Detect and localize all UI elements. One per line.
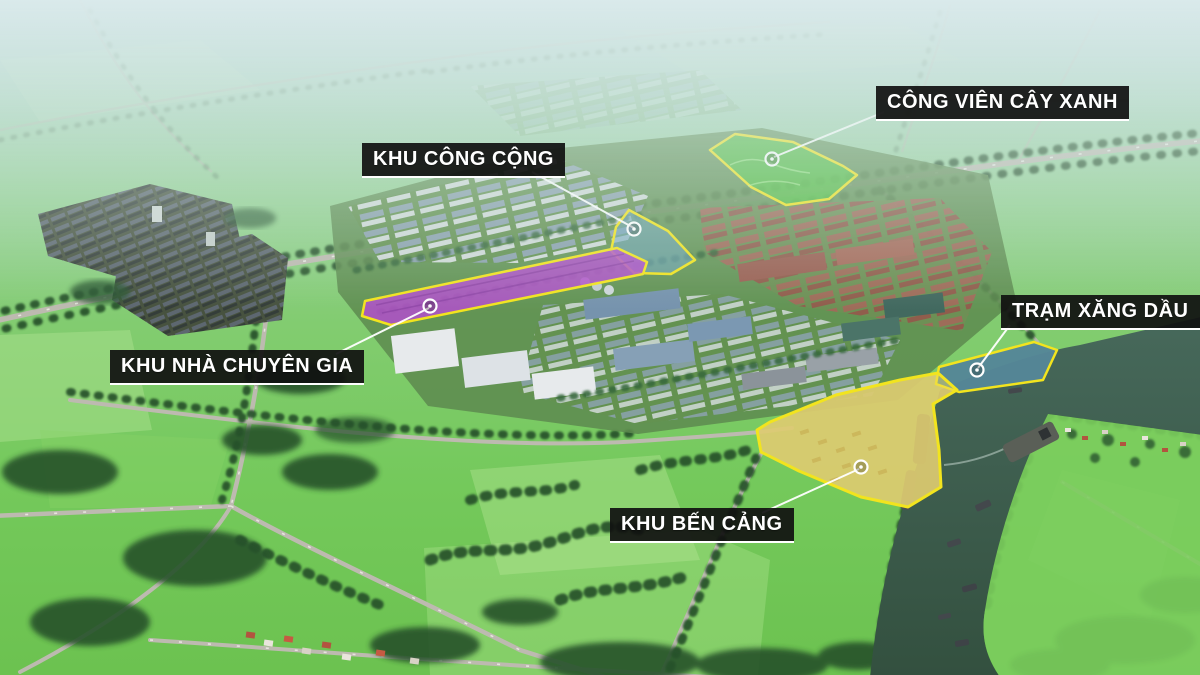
zone-label-public: KHU CÔNG CỘNG (362, 143, 565, 178)
haze-overlay (0, 0, 1200, 310)
zone-label-park: CÔNG VIÊN CÂY XANH (876, 86, 1129, 121)
masterplan-aerial-view: CÔNG VIÊN CÂY XANH KHU CÔNG CỘNG KHU NHÀ… (0, 0, 1200, 675)
marker-icon-gas (971, 364, 984, 377)
zone-label-expert: KHU NHÀ CHUYÊN GIA (110, 350, 364, 385)
zone-label-gas: TRẠM XĂNG DẦU (1001, 295, 1200, 330)
marker-icon-port (855, 461, 868, 474)
zone-label-port: KHU BẾN CẢNG (610, 508, 794, 543)
